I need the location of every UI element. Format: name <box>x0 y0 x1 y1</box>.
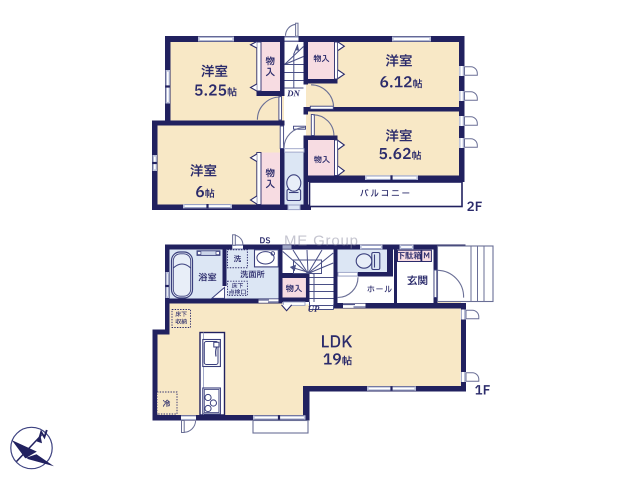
svg-text:ME Group: ME Group <box>284 233 359 250</box>
